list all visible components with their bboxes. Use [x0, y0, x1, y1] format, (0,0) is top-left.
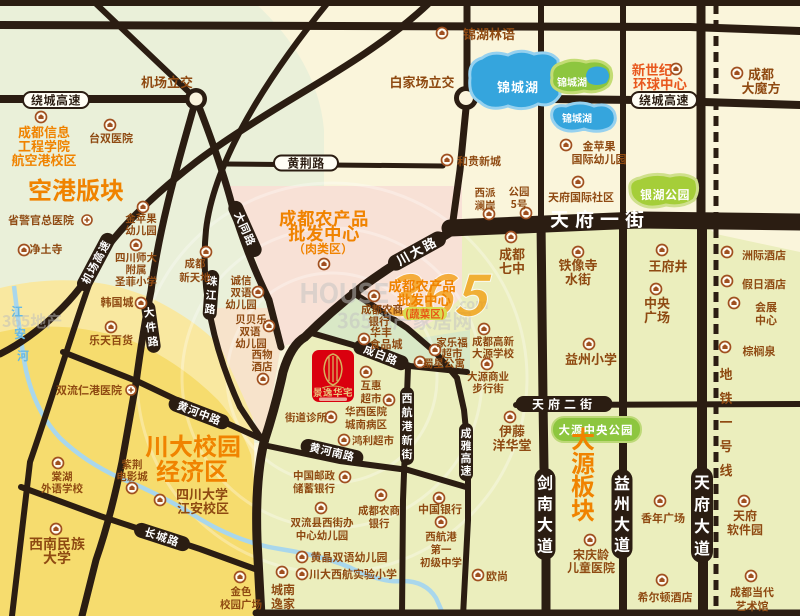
svg-text:净土寺: 净土寺	[30, 241, 63, 257]
svg-text:艺术馆: 艺术馆	[736, 598, 769, 614]
svg-text:和贵新城: 和贵新城	[457, 153, 501, 169]
svg-text:益州小学: 益州小学	[565, 349, 617, 368]
svg-text:成都: 成都	[185, 256, 206, 271]
svg-text:(蔬菜区): (蔬菜区)	[405, 307, 444, 322]
svg-text:航空港校区: 航空港校区	[11, 150, 76, 169]
svg-text:环球中心: 环球中心	[633, 73, 687, 93]
svg-text:中心幼儿园: 中心幼儿园	[296, 528, 349, 543]
svg-text:省警官总医院: 省警官总医院	[8, 212, 74, 228]
svg-text:天府一街: 天府一街	[550, 205, 650, 232]
svg-text:幼儿园: 幼儿园	[125, 223, 157, 238]
svg-text:电影城: 电影城	[116, 469, 148, 484]
svg-text:台双医院: 台双医院	[89, 130, 133, 146]
svg-text:中国银行: 中国银行	[418, 501, 462, 517]
svg-text:双流仁港医院: 双流仁港医院	[56, 382, 122, 398]
svg-text:洲际酒店: 洲际酒店	[742, 247, 786, 263]
svg-text:大源学校: 大源学校	[472, 346, 514, 361]
svg-text:5号: 5号	[511, 197, 528, 212]
svg-text:圣菲小学: 圣菲小学	[115, 274, 157, 289]
svg-text:水街: 水街	[565, 269, 591, 288]
svg-text:块: 块	[571, 491, 595, 526]
svg-text:食品城: 食品城	[370, 336, 403, 352]
svg-text:洋华堂: 洋华堂	[492, 435, 531, 454]
svg-text:软件园: 软件园	[727, 521, 763, 538]
svg-text:川大西航实验小学: 川大西航实验小学	[309, 566, 397, 582]
svg-text:黄荆路: 黄荆路	[287, 154, 325, 171]
svg-text:天府二街: 天府二街	[532, 395, 596, 412]
svg-text:河: 河	[17, 347, 29, 364]
svg-text:鸿利超市: 鸿利超市	[352, 433, 394, 448]
svg-text:号: 号	[719, 436, 732, 455]
svg-text:酒店: 酒店	[252, 359, 273, 374]
svg-text:铁: 铁	[719, 388, 732, 407]
svg-text:幼儿园: 幼儿园	[225, 297, 257, 312]
svg-text:江: 江	[11, 303, 23, 320]
svg-text:景逸华宅: 景逸华宅	[313, 385, 353, 399]
svg-text:广场: 广场	[644, 307, 670, 326]
svg-text:一: 一	[719, 412, 732, 431]
svg-text:大: 大	[694, 513, 710, 537]
svg-text:澜岸: 澜岸	[475, 198, 496, 213]
svg-text:白家场立交: 白家场立交	[389, 72, 454, 91]
svg-text:王府井: 王府井	[648, 256, 687, 275]
svg-text:路: 路	[146, 333, 159, 350]
svg-text:经济区: 经济区	[156, 452, 228, 487]
svg-text:新天地: 新天地	[179, 270, 211, 285]
svg-text:机场立交: 机场立交	[141, 72, 193, 91]
svg-text:七中: 七中	[499, 258, 525, 277]
svg-text:地: 地	[719, 364, 732, 383]
svg-text:安: 安	[14, 325, 26, 342]
svg-text:国际幼儿园: 国际幼儿园	[572, 151, 627, 167]
svg-text:道: 道	[537, 532, 553, 556]
svg-text:天府国际社区: 天府国际社区	[548, 189, 614, 205]
svg-text:大学: 大学	[43, 548, 71, 568]
svg-text:速: 速	[461, 463, 472, 479]
svg-text:银湖公园: 银湖公园	[640, 186, 690, 203]
svg-text:初级中学: 初级中学	[420, 555, 462, 570]
svg-text:（肉类区）: （肉类区）	[293, 240, 353, 257]
svg-text:假日酒店: 假日酒店	[742, 276, 786, 292]
svg-text:蜀星公寓: 蜀星公寓	[423, 356, 465, 371]
svg-text:空港版块: 空港版块	[28, 171, 124, 206]
svg-text:储蓄银行: 储蓄银行	[293, 481, 335, 496]
svg-text:棕榈泉: 棕榈泉	[743, 343, 776, 359]
svg-text:黄晶双语幼儿园: 黄晶双语幼儿园	[311, 549, 388, 565]
svg-text:街道诊所: 街道诊所	[285, 410, 327, 425]
svg-text:线: 线	[719, 460, 732, 479]
svg-text:希尔顿酒店: 希尔顿酒店	[638, 589, 693, 605]
svg-text:城南病区: 城南病区	[345, 417, 387, 432]
svg-text:校园广场: 校园广场	[220, 597, 262, 612]
svg-text:步行街: 步行街	[472, 381, 504, 396]
svg-text:儿童医院: 儿童医院	[567, 559, 615, 576]
svg-text:大魔方: 大魔方	[741, 78, 780, 97]
svg-text:锦湖林语: 锦湖林语	[463, 24, 515, 43]
svg-text:道: 道	[694, 535, 710, 559]
svg-text:韩国城: 韩国城	[101, 294, 134, 310]
svg-text:外语学校: 外语学校	[41, 481, 83, 496]
svg-text:路: 路	[204, 301, 216, 318]
svg-text:乐天百货: 乐天百货	[89, 332, 133, 348]
svg-text:锦城湖: 锦城湖	[497, 77, 539, 96]
svg-text:锦城湖: 锦城湖	[557, 74, 587, 89]
svg-text:逸家: 逸家	[271, 595, 295, 612]
svg-text:府: 府	[694, 491, 710, 515]
svg-text:欧尚: 欧尚	[486, 568, 508, 584]
svg-text:绕城高速: 绕城高速	[639, 91, 689, 108]
svg-text:中心: 中心	[755, 312, 777, 328]
svg-text:天: 天	[694, 469, 710, 493]
svg-text:道: 道	[614, 532, 630, 556]
svg-text:银行: 银行	[369, 516, 390, 531]
svg-text:江安校区: 江安校区	[177, 498, 229, 517]
svg-text:街: 街	[402, 446, 413, 462]
svg-text:锦城湖: 锦城湖	[562, 110, 592, 125]
svg-text:香年广场: 香年广场	[641, 510, 685, 526]
svg-text:大源中央公园: 大源中央公园	[559, 422, 634, 438]
svg-text:绕城高速: 绕城高速	[31, 91, 81, 108]
